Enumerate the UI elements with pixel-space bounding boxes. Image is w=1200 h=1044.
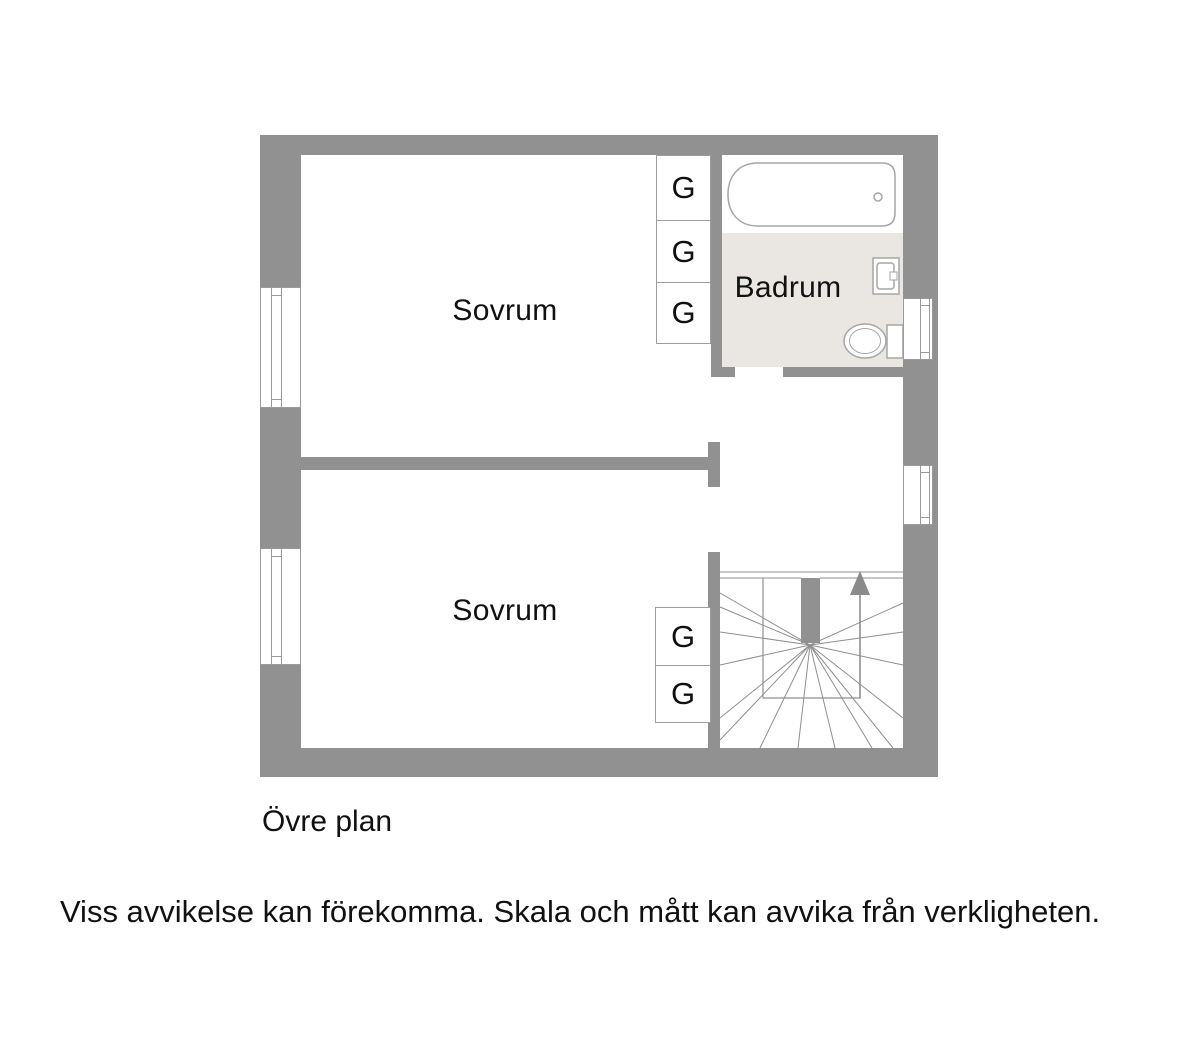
window-tick bbox=[920, 517, 930, 518]
wardrobe-box: G bbox=[655, 665, 711, 723]
wall-exterior-top bbox=[262, 135, 938, 155]
window-pane bbox=[271, 288, 282, 407]
room-label-bathroom: Badrum bbox=[688, 271, 888, 304]
window-tick bbox=[271, 399, 282, 400]
stair-newel bbox=[801, 578, 820, 643]
window-icon bbox=[903, 298, 933, 360]
wall-divider-end-cap bbox=[708, 442, 720, 487]
wall-closet-bathroom bbox=[711, 155, 722, 377]
wardrobe-box: G bbox=[656, 155, 711, 221]
wardrobe-label: G bbox=[671, 234, 695, 270]
staircase-icon bbox=[720, 555, 903, 748]
wall-exterior-bottom bbox=[260, 748, 938, 777]
wardrobe-box: G bbox=[655, 607, 711, 666]
window-pane bbox=[271, 549, 282, 664]
floor-title: Övre plan bbox=[262, 805, 392, 839]
window-tick bbox=[920, 305, 930, 306]
wall-bathroom-door-jamb bbox=[711, 367, 735, 377]
window-pane bbox=[920, 466, 930, 524]
room-label-bedroom-top: Sovrum bbox=[375, 294, 635, 327]
window-tick bbox=[920, 472, 930, 473]
window-tick bbox=[920, 352, 930, 353]
toilet-icon bbox=[844, 324, 903, 358]
disclaimer-text: Viss avvikelse kan förekomma. Skala och … bbox=[0, 894, 1160, 930]
window-icon bbox=[260, 287, 301, 408]
wall-bedroom-divider bbox=[301, 457, 710, 470]
wall-bathroom-bottom bbox=[783, 367, 903, 377]
bathtub-icon bbox=[728, 163, 895, 226]
window-pane bbox=[920, 299, 930, 359]
window-icon bbox=[260, 548, 301, 665]
floor-plan: G G G G G bbox=[0, 0, 1200, 1044]
bathroom-fixtures bbox=[722, 155, 903, 367]
window-icon bbox=[903, 465, 933, 525]
window-tick bbox=[271, 556, 282, 557]
wall-exterior-right bbox=[903, 135, 938, 748]
room-label-bedroom-bottom: Sovrum bbox=[375, 594, 635, 627]
window-tick bbox=[271, 295, 282, 296]
wardrobe-label: G bbox=[671, 170, 695, 206]
window-tick bbox=[271, 656, 282, 657]
wardrobe-label: G bbox=[671, 619, 695, 655]
wardrobe-label: G bbox=[671, 676, 695, 712]
